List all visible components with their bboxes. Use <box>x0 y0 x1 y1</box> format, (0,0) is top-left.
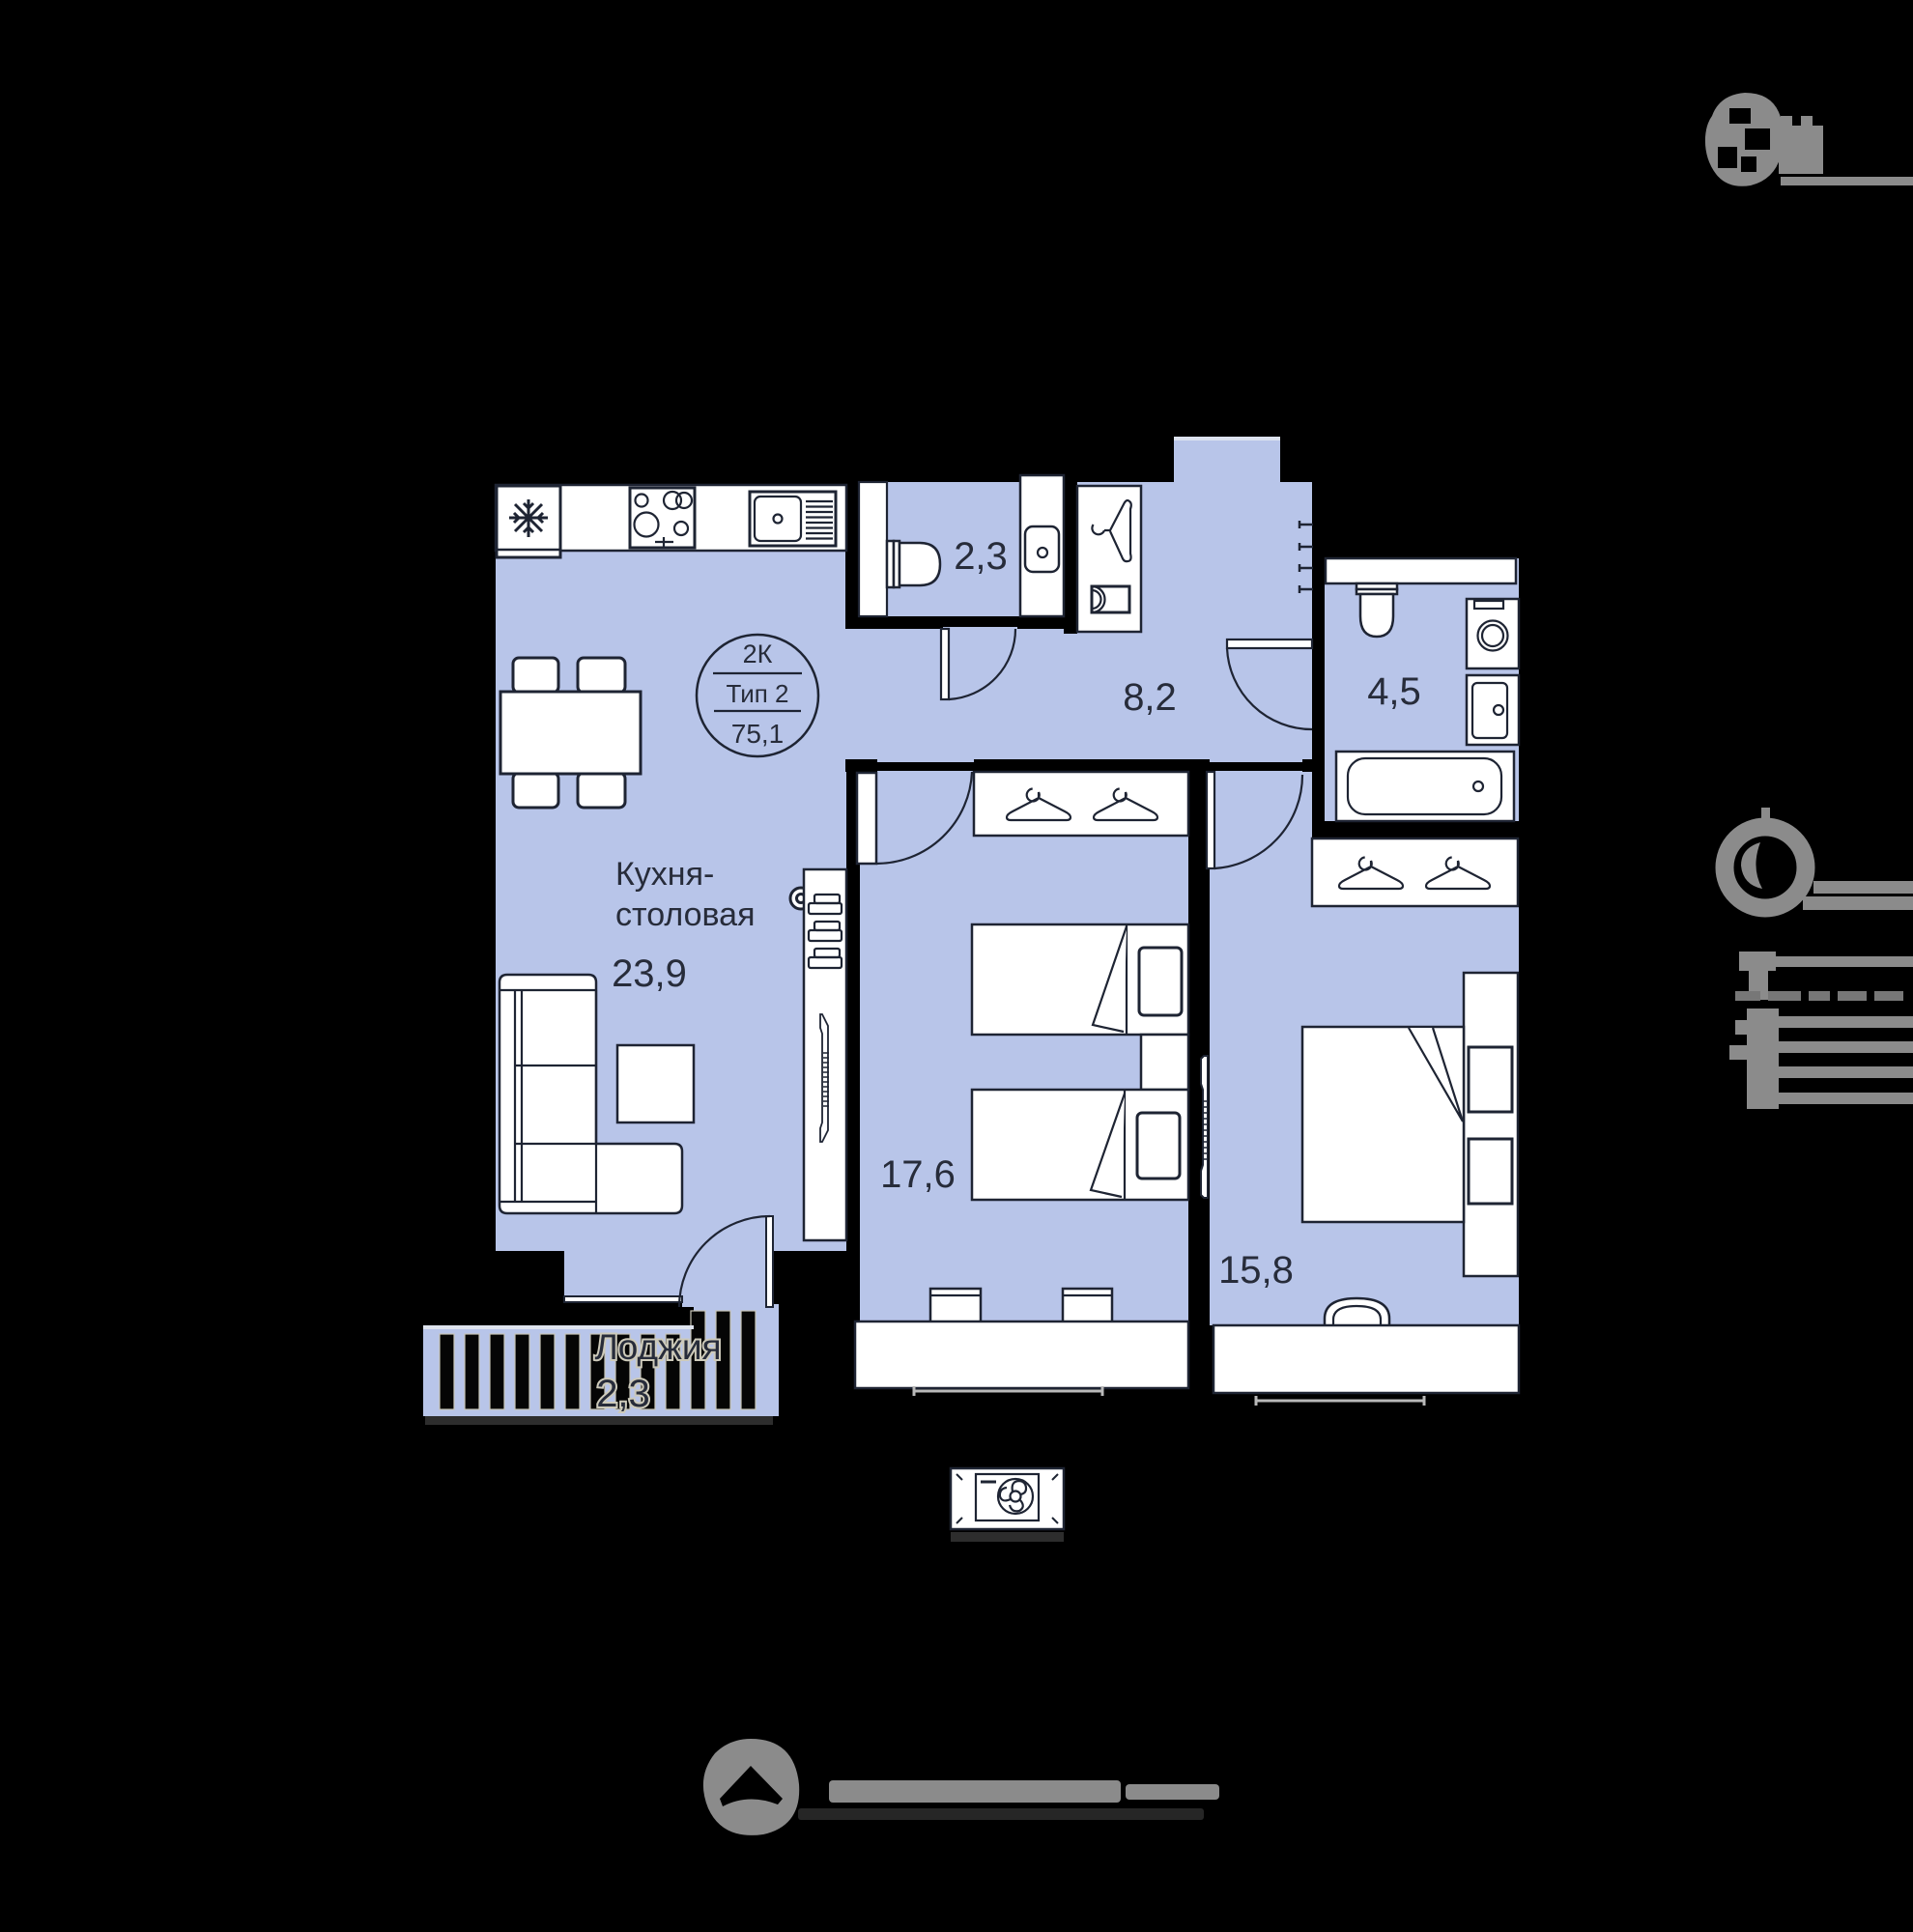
svg-text:23,9: 23,9 <box>612 952 687 995</box>
svg-text:Тип 2: Тип 2 <box>726 679 788 708</box>
svg-text:4,5: 4,5 <box>1367 670 1421 713</box>
svg-text:столовая: столовая <box>615 896 755 933</box>
svg-text:2К: 2К <box>743 639 773 668</box>
svg-text:2,3: 2,3 <box>596 1373 650 1415</box>
svg-text:Лоджия: Лоджия <box>594 1327 721 1367</box>
svg-text:2,3: 2,3 <box>954 535 1008 578</box>
svg-text:Кухня-: Кухня- <box>615 856 714 893</box>
svg-text:8,2: 8,2 <box>1123 676 1177 719</box>
svg-text:15,8: 15,8 <box>1218 1249 1294 1292</box>
svg-text:17,6: 17,6 <box>880 1153 956 1196</box>
svg-text:75,1: 75,1 <box>731 719 785 749</box>
